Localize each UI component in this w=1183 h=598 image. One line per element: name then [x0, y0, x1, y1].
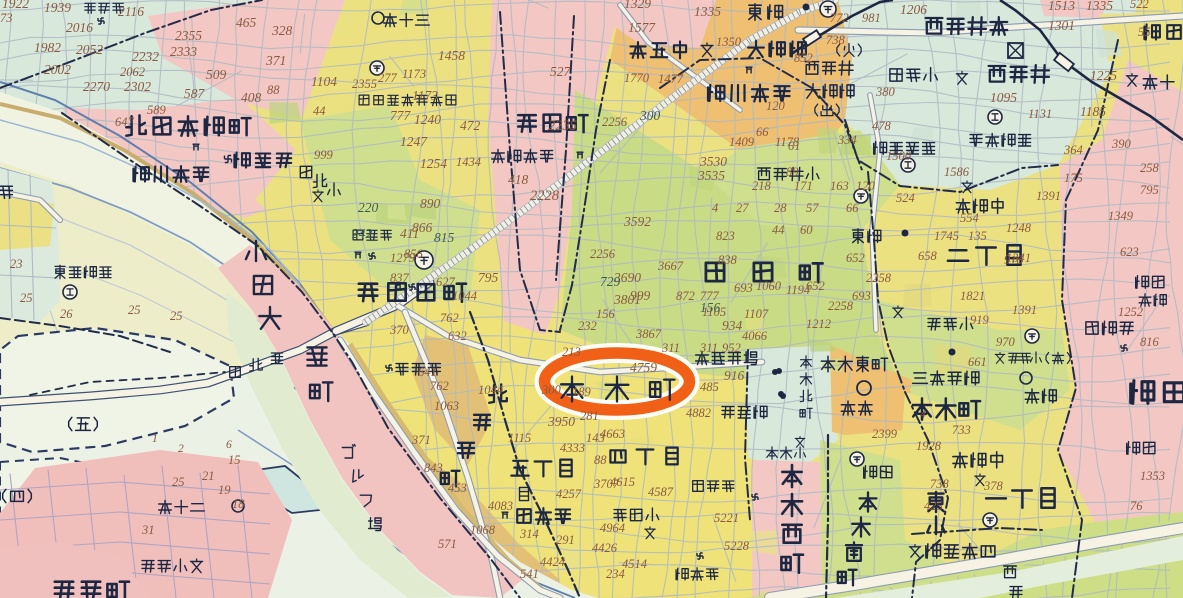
- svg-text:1335: 1335: [1086, 0, 1113, 13]
- svg-text:3867: 3867: [635, 327, 662, 341]
- svg-text:970: 970: [996, 335, 1016, 349]
- svg-text:647: 647: [115, 115, 135, 129]
- svg-text:23: 23: [10, 257, 23, 271]
- svg-text:213: 213: [562, 345, 581, 359]
- svg-text:1247: 1247: [400, 134, 428, 149]
- svg-text:3535: 3535: [697, 168, 725, 183]
- svg-text:1349: 1349: [1108, 209, 1134, 223]
- svg-text:66: 66: [846, 201, 859, 215]
- svg-text:73: 73: [0, 11, 13, 25]
- svg-text:1044: 1044: [452, 289, 477, 303]
- svg-text:4333: 4333: [560, 441, 585, 455]
- svg-text:5228: 5228: [724, 539, 750, 553]
- svg-text:1115: 1115: [508, 431, 531, 445]
- svg-text:587: 587: [184, 86, 206, 101]
- svg-text:2228: 2228: [530, 188, 560, 204]
- svg-text:632: 632: [448, 329, 467, 343]
- svg-text:120: 120: [856, 179, 876, 193]
- svg-text:623: 623: [1120, 245, 1139, 259]
- svg-text:425: 425: [924, 499, 943, 513]
- svg-text:27: 27: [736, 201, 749, 215]
- svg-text:88: 88: [594, 453, 607, 467]
- svg-text:1173: 1173: [412, 88, 438, 103]
- svg-text:522: 522: [1130, 0, 1149, 11]
- svg-text:328: 328: [271, 23, 293, 38]
- svg-text:2270: 2270: [83, 79, 110, 94]
- svg-text:4426: 4426: [592, 541, 618, 555]
- svg-text:314: 314: [519, 527, 539, 541]
- svg-text:4514: 4514: [622, 557, 647, 571]
- svg-text:1060: 1060: [756, 279, 782, 293]
- svg-text:465: 465: [236, 15, 257, 30]
- svg-text:795: 795: [1140, 183, 1159, 197]
- svg-text:3950: 3950: [547, 414, 575, 429]
- svg-text:277: 277: [378, 71, 398, 85]
- svg-text:4424: 4424: [540, 555, 565, 569]
- svg-text:772: 772: [830, 11, 849, 25]
- svg-text:1477: 1477: [658, 72, 684, 86]
- svg-text:916: 916: [1004, 253, 1024, 267]
- svg-text:25: 25: [170, 309, 183, 323]
- svg-text:1335: 1335: [694, 4, 721, 19]
- svg-text:4615: 4615: [610, 475, 635, 489]
- svg-text:2302: 2302: [124, 79, 151, 94]
- svg-text:371: 371: [411, 433, 431, 447]
- svg-text:18: 18: [232, 497, 245, 511]
- svg-text:1173: 1173: [402, 67, 426, 81]
- svg-text:1922: 1922: [2, 0, 29, 11]
- svg-text:61: 61: [788, 139, 801, 153]
- svg-text:25: 25: [20, 291, 33, 305]
- svg-text:364: 364: [1063, 143, 1083, 157]
- svg-text:1928: 1928: [916, 439, 942, 453]
- svg-text:2232: 2232: [132, 49, 159, 64]
- svg-text:823: 823: [716, 229, 735, 243]
- svg-text:952: 952: [722, 341, 741, 355]
- svg-text:281: 281: [580, 409, 599, 423]
- svg-text:1206: 1206: [900, 2, 927, 17]
- svg-text:1068: 1068: [470, 523, 496, 537]
- svg-text:19: 19: [218, 483, 231, 497]
- svg-text:554: 554: [960, 211, 979, 225]
- svg-text:541: 541: [520, 567, 539, 581]
- svg-text:2062: 2062: [120, 65, 145, 79]
- svg-text:89: 89: [786, 165, 799, 179]
- svg-text:3592: 3592: [623, 214, 651, 229]
- svg-text:380: 380: [875, 85, 896, 99]
- svg-text:2258: 2258: [828, 299, 854, 313]
- svg-text:738: 738: [930, 477, 950, 491]
- svg-text:1225: 1225: [1090, 68, 1117, 83]
- svg-text:44: 44: [772, 223, 785, 237]
- svg-text:1104: 1104: [311, 74, 337, 89]
- svg-text:25: 25: [128, 303, 141, 317]
- svg-text:815: 815: [434, 230, 455, 245]
- svg-text:453: 453: [448, 481, 467, 495]
- svg-text:919: 919: [970, 313, 990, 327]
- svg-text:661: 661: [968, 355, 987, 369]
- svg-text:390: 390: [1111, 137, 1132, 151]
- svg-text:311: 311: [699, 341, 718, 355]
- svg-text:1095: 1095: [990, 90, 1017, 105]
- svg-text:175: 175: [1064, 171, 1083, 185]
- svg-text:311: 311: [661, 341, 680, 355]
- svg-text:4587: 4587: [648, 485, 674, 499]
- svg-text:1350: 1350: [716, 35, 742, 49]
- svg-text:852: 852: [794, 51, 813, 65]
- svg-text:2333: 2333: [170, 44, 197, 59]
- svg-text:2258: 2258: [866, 271, 892, 285]
- svg-text:26: 26: [60, 307, 73, 321]
- svg-text:1301: 1301: [1048, 18, 1075, 33]
- svg-text:378: 378: [983, 479, 1004, 493]
- svg-text:1513: 1513: [1048, 0, 1075, 13]
- svg-text:218: 218: [752, 179, 772, 193]
- svg-text:15: 15: [228, 453, 241, 467]
- svg-text:1212: 1212: [806, 317, 831, 331]
- svg-text:44: 44: [313, 104, 326, 118]
- svg-text:1409: 1409: [729, 135, 755, 149]
- svg-text:2355: 2355: [352, 77, 377, 91]
- svg-text:872: 872: [676, 289, 695, 303]
- svg-text:156: 156: [596, 307, 616, 321]
- svg-text:57: 57: [806, 201, 819, 215]
- svg-text:135: 135: [968, 229, 987, 243]
- svg-text:1353: 1353: [1140, 469, 1165, 483]
- svg-text:1254: 1254: [420, 156, 447, 171]
- svg-text:478: 478: [872, 119, 892, 133]
- svg-text:485: 485: [700, 380, 719, 394]
- svg-text:1586: 1586: [944, 165, 970, 179]
- svg-text:916: 916: [724, 368, 745, 383]
- svg-text:21: 21: [202, 469, 215, 483]
- svg-text:4882: 4882: [686, 406, 711, 420]
- svg-text:1391: 1391: [1012, 303, 1037, 317]
- svg-text:2355: 2355: [175, 28, 202, 43]
- svg-text:189: 189: [572, 385, 592, 399]
- svg-text:25: 25: [172, 475, 185, 489]
- svg-text:589: 589: [147, 103, 167, 117]
- svg-text:509: 509: [206, 67, 227, 82]
- svg-text:258: 258: [1140, 161, 1160, 175]
- svg-text:3667: 3667: [657, 259, 684, 273]
- svg-text:1131: 1131: [1028, 107, 1052, 121]
- svg-text:1044: 1044: [478, 383, 503, 397]
- svg-text:762: 762: [430, 379, 449, 393]
- svg-text:4663: 4663: [600, 427, 625, 441]
- svg-text:2116: 2116: [118, 4, 144, 19]
- svg-text:658: 658: [918, 249, 938, 263]
- svg-text:981: 981: [862, 11, 881, 25]
- svg-text:524: 524: [896, 191, 915, 205]
- svg-text:816: 816: [1140, 335, 1160, 349]
- svg-text:795: 795: [478, 270, 499, 285]
- svg-text:4083: 4083: [488, 499, 513, 513]
- svg-text:418: 418: [508, 172, 529, 187]
- svg-text:738: 738: [826, 33, 846, 47]
- svg-text:1252: 1252: [1118, 305, 1143, 319]
- svg-text:693: 693: [734, 281, 753, 295]
- svg-text:693: 693: [852, 289, 871, 303]
- svg-text:1770: 1770: [624, 71, 650, 85]
- svg-text:232: 232: [578, 319, 597, 333]
- svg-text:2235: 2235: [548, 118, 577, 134]
- svg-text:3530: 3530: [699, 154, 727, 169]
- svg-text:300: 300: [541, 383, 562, 397]
- svg-text:2052: 2052: [76, 42, 103, 57]
- svg-text:571: 571: [438, 537, 457, 551]
- svg-text:220: 220: [358, 200, 379, 215]
- svg-text:4759: 4759: [630, 360, 657, 375]
- svg-text:234: 234: [606, 567, 625, 581]
- svg-text:291: 291: [556, 533, 575, 547]
- svg-text:55: 55: [1138, 25, 1151, 39]
- svg-text:163: 163: [830, 179, 849, 193]
- svg-text:1185: 1185: [1080, 104, 1106, 119]
- svg-text:856: 856: [404, 247, 424, 261]
- svg-text:6: 6: [226, 439, 232, 451]
- svg-text:334: 334: [837, 133, 857, 147]
- svg-text:2256: 2256: [602, 115, 628, 129]
- svg-text:4: 4: [920, 409, 926, 421]
- svg-text:88: 88: [267, 83, 280, 97]
- svg-text:5221: 5221: [714, 511, 739, 525]
- svg-text:4066: 4066: [742, 329, 768, 343]
- svg-text:60: 60: [800, 223, 813, 237]
- svg-text:1391: 1391: [1036, 189, 1061, 203]
- svg-text:120: 120: [766, 99, 786, 113]
- svg-text:777: 777: [390, 108, 412, 123]
- svg-text:4: 4: [712, 201, 718, 215]
- svg-text:1577: 1577: [628, 20, 656, 35]
- svg-text:843: 843: [424, 461, 443, 475]
- svg-text:652: 652: [846, 251, 865, 265]
- svg-text:1982: 1982: [34, 40, 61, 55]
- svg-text:527: 527: [550, 64, 572, 79]
- svg-text:300: 300: [639, 108, 661, 123]
- svg-text:2016: 2016: [66, 20, 93, 35]
- svg-text:838: 838: [718, 253, 738, 267]
- svg-text:2399: 2399: [872, 427, 898, 441]
- svg-text:2256: 2256: [590, 247, 616, 261]
- svg-text:171: 171: [794, 179, 813, 193]
- svg-text:1939: 1939: [44, 0, 71, 15]
- svg-text:866: 866: [412, 220, 433, 235]
- svg-text:2002: 2002: [44, 62, 71, 77]
- svg-text:371: 371: [265, 53, 286, 68]
- svg-text:1329: 1329: [624, 0, 651, 11]
- svg-text:370: 370: [389, 323, 410, 337]
- svg-text:733: 733: [952, 423, 971, 437]
- svg-text:837: 837: [390, 271, 410, 285]
- svg-text:1821: 1821: [960, 289, 985, 303]
- svg-text:1500: 1500: [886, 149, 912, 163]
- svg-text:1248: 1248: [1006, 221, 1032, 235]
- svg-text:729: 729: [600, 274, 621, 289]
- svg-text:999: 999: [314, 148, 334, 162]
- svg-text:472: 472: [460, 118, 481, 133]
- svg-text:28: 28: [774, 201, 787, 215]
- svg-text:1240: 1240: [414, 112, 441, 127]
- svg-text:66: 66: [756, 125, 769, 139]
- svg-text:76: 76: [1130, 499, 1143, 513]
- svg-text:4964: 4964: [600, 521, 625, 535]
- svg-text:4257: 4257: [556, 487, 582, 501]
- svg-text:1063: 1063: [434, 399, 459, 413]
- svg-text:408: 408: [241, 90, 262, 105]
- svg-text:242: 242: [352, 226, 373, 241]
- svg-text:1745: 1745: [934, 229, 959, 243]
- svg-text:1107: 1107: [744, 307, 769, 321]
- svg-text:627: 627: [436, 275, 456, 289]
- svg-text:641: 641: [418, 365, 437, 379]
- svg-text:890: 890: [420, 196, 441, 211]
- svg-text:1: 1: [152, 433, 158, 445]
- svg-text:31: 31: [141, 523, 155, 537]
- svg-text:3801: 3801: [613, 292, 641, 307]
- svg-text:1434: 1434: [456, 155, 481, 169]
- svg-text:2: 2: [178, 443, 184, 455]
- svg-text:934: 934: [722, 318, 743, 333]
- svg-text:156: 156: [700, 300, 721, 315]
- svg-text:762: 762: [440, 311, 459, 325]
- svg-text:1194: 1194: [786, 283, 810, 297]
- svg-text:1458: 1458: [438, 48, 465, 63]
